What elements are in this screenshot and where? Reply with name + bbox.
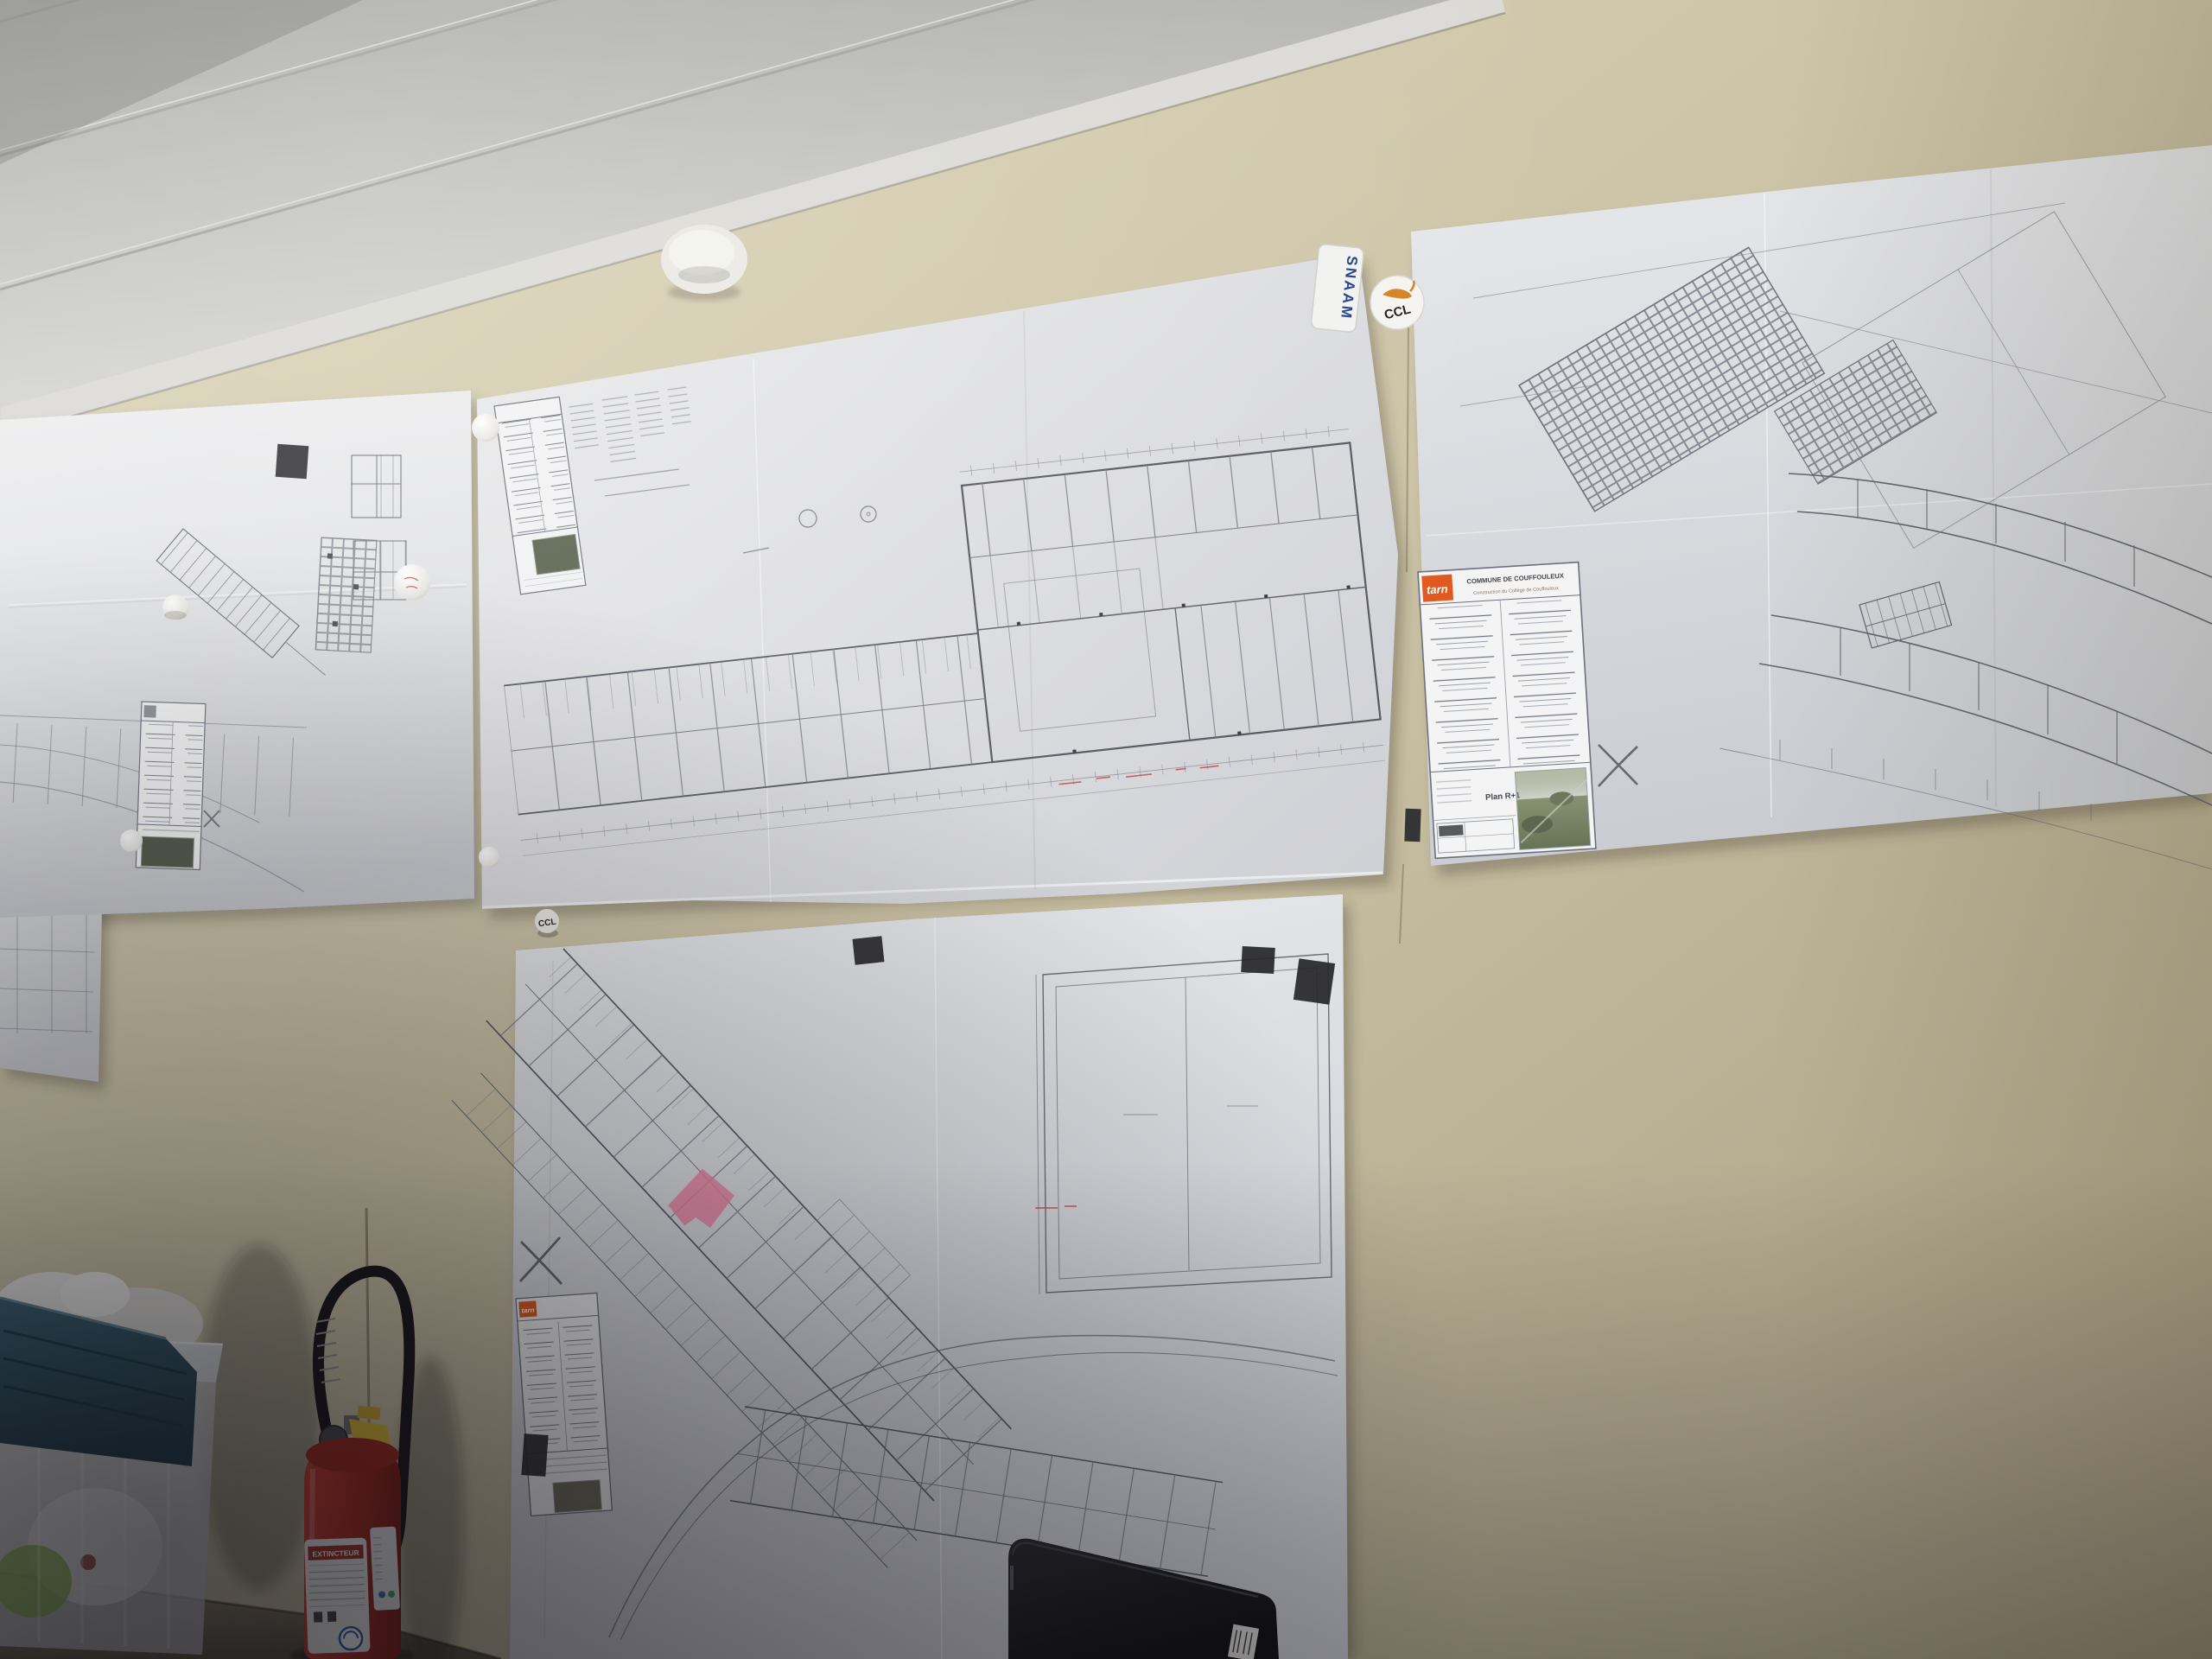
sheet-bottom: tarn (428, 894, 1348, 1659)
tape-bottom-titleblock (521, 1433, 548, 1477)
aerial-photo-bottom (553, 1480, 601, 1513)
aerial-photo-right (1515, 768, 1590, 850)
tape-bottom-sheet-top (1294, 958, 1335, 1004)
tape-left-sheet (276, 444, 309, 479)
ccl-badge: CCL (1370, 276, 1424, 329)
pin-center-bottom (479, 847, 499, 868)
titleblock-left (136, 702, 206, 869)
site-office-photo: tarn COMMUNE DE COUFFOULEUX Construction… (0, 0, 2212, 1659)
ccl-magnet: CCL (535, 909, 559, 938)
tarn-logo-small-label: tarn (521, 1306, 535, 1315)
snaam-sticker: SNAAM (1311, 244, 1364, 333)
pin-center-top (472, 414, 499, 442)
extinguisher-brand: EXTINCTEUR (312, 1548, 359, 1559)
extinguisher-side-label (370, 1527, 400, 1611)
tape-center-gap-right (1241, 946, 1275, 974)
titleblock-bottom: tarn (516, 1293, 612, 1516)
tape-center-gap-left (853, 936, 885, 964)
sheet-right: tarn COMMUNE DE COUFFOULEUX Construction… (1411, 145, 2212, 869)
extinguisher-label: EXTINCTEUR (304, 1537, 371, 1653)
plan-left-cluster (315, 537, 377, 652)
aerial-photo-left (141, 836, 194, 868)
tarn-logo-label: tarn (1427, 582, 1448, 596)
sheet-left (0, 391, 474, 918)
titleblock-right: tarn COMMUNE DE COUFFOULEUX Construction… (1418, 563, 1596, 859)
tape-right-titleblock (1404, 809, 1421, 842)
pin-left-mid (394, 564, 430, 601)
pin-left-bottom (120, 829, 143, 852)
smoke-detector (661, 225, 747, 301)
aerial-photo-center (532, 534, 580, 575)
